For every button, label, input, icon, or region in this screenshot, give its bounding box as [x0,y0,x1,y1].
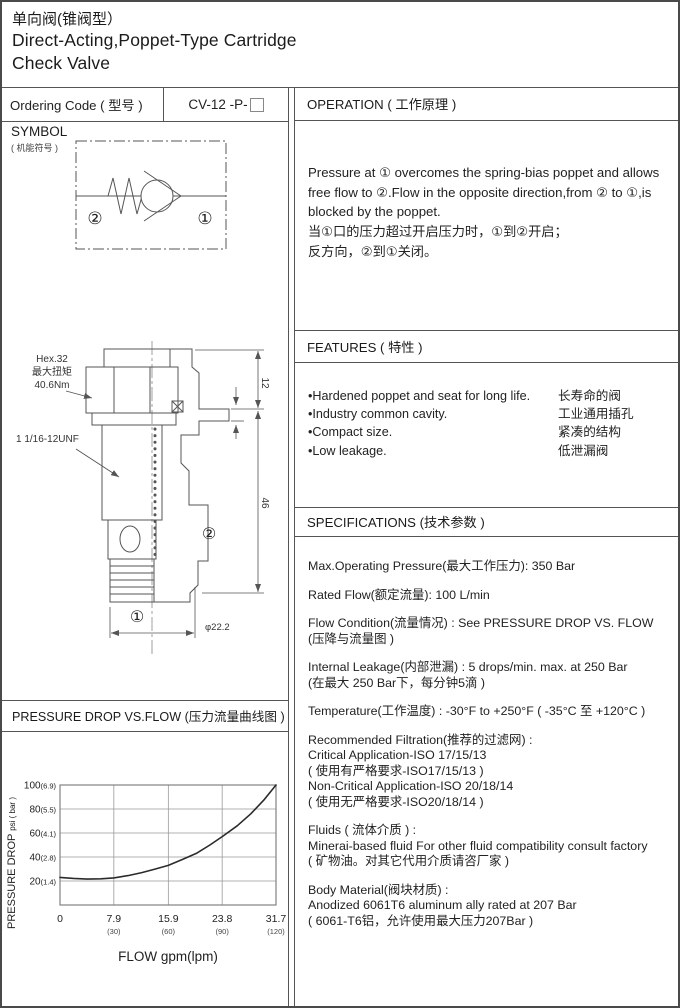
column-divider-outer [288,88,289,1006]
spec-line: (在最大 250 Bar下，每分钟5滴 ) [308,676,668,692]
x-tick-sublabel: (120) [267,927,285,936]
spec-item: Internal Leakage(内部泄漏) : 5 drops/min. ma… [308,660,668,691]
symbol-heading-zh: ( 机能符号 ) [11,141,58,154]
spec-line: Non-Critical Application-ISO 20/18/14 [308,779,668,795]
operation-section: OPERATION ( 工作原理 ) Pressure at ① overcom… [295,88,678,262]
thread-label: 1 1/16-12UNF [16,434,79,445]
drawing-port-2-label: ② [202,526,216,543]
specifications-section: SPECIFICATIONS (技术参数 ) Max.Operating Pre… [295,507,678,942]
x-axis-label: FLOW gpm(lpm) [118,949,218,964]
operation-text-en: Pressure at ① overcomes the spring-bias … [308,163,666,222]
x-tick-label: 23.8 [212,913,233,925]
spec-line: Critical Application-ISO 17/15/13 [308,748,668,764]
feature-text-zh: 低泄漏阀 [558,442,662,460]
spec-line: ( 6061-T6铝，允许使用最大压力207Bar ) [308,914,668,930]
ordering-code-option-box [250,98,264,112]
spec-line: ( 使用无严格要求-ISO20/18/14 ) [308,795,668,811]
feature-row: •Low leakage.低泄漏阀 [308,442,662,460]
symbol-port-2-label: ② [87,209,102,228]
symbol-heading: SYMBOL [11,124,67,139]
y-axis-label: PRESSURE DROP psi ( bar ) [6,797,18,929]
ordering-code-text: CV-12 -P- [188,97,247,112]
hex-callout-arrow [66,391,92,398]
page-title-en-line2: Check Valve [12,52,297,74]
spec-line: Flow Condition(流量情况) : See PRESSURE DROP… [308,616,668,632]
operation-content: Pressure at ① overcomes the spring-bias … [295,121,678,262]
symbol-port-1-label: ① [197,209,212,228]
spec-item: Fluids ( 流体介质 ) :Minerai-based fluid For… [308,823,668,870]
x-tick-sublabel: (60) [162,927,176,936]
spec-line: Internal Leakage(内部泄漏) : 5 drops/min. ma… [308,660,668,676]
y-tick-label: 60(4.1) [29,829,56,840]
feature-text-en: •Low leakage. [308,442,558,460]
valve-body-outline [86,349,229,602]
ordering-code-row: Ordering Code ( 型号 ) CV-12 -P- [2,88,288,122]
title-block: 单向阀(锥阀型） Direct-Acting,Poppet-Type Cartr… [12,10,297,74]
dim-46-label: 46 [259,497,270,509]
thread-callout-arrow [76,449,119,477]
pressure-drop-section-header: PRESSURE DROP VS.FLOW (压力流量曲线图 ) [2,700,288,732]
hex-label-line2: 最大扭矩 [32,365,72,378]
feature-row: •Compact size.紧凑的结构 [308,423,662,441]
y-tick-label: 20(1.4) [29,877,56,888]
x-tick-label: 15.9 [158,913,179,925]
spec-line: Recommended Filtration(推荐的过滤网) : [308,733,668,749]
x-tick-label: 0 [57,913,63,925]
datasheet-page: 单向阀(锥阀型） Direct-Acting,Poppet-Type Cartr… [0,0,680,1008]
x-tick-label: 31.7 [266,913,287,925]
spec-item: Flow Condition(流量情况) : See PRESSURE DROP… [308,616,668,647]
dimension-lines [110,350,264,638]
spec-line: Anodized 6061T6 aluminum ally rated at 2… [308,898,668,914]
spec-line: Temperature(工作温度) : -30°F to +250°F ( -3… [308,704,668,720]
page-title-en-line1: Direct-Acting,Poppet-Type Cartridge [12,29,297,51]
cartridge-cross-section-drawing: 12 46 φ22.2 Hex.32 最大扭矩 40.6Nm 1 1/16-12… [2,335,288,702]
feature-row: •Industry common cavity.工业通用插孔 [308,405,662,423]
dim-diameter-label: φ22.2 [205,622,230,633]
spec-line: Fluids ( 流体介质 ) : [308,823,668,839]
hex-label-line3: 40.6Nm [34,380,69,391]
spec-item: Recommended Filtration(推荐的过滤网) :Critical… [308,733,668,811]
poppet-ball-symbol [141,180,173,212]
spec-line: Rated Flow(额定流量): 100 L/min [308,588,668,604]
x-tick-label: 7.9 [107,913,122,925]
ordering-code-label: Ordering Code ( 型号 ) [2,88,164,121]
hex-label-line1: Hex.32 [36,354,68,365]
spec-line: Max.Operating Pressure(最大工作压力): 350 Bar [308,559,668,575]
feature-text-en: •Compact size. [308,423,558,441]
operation-text-zh1: 当①口的压力超过开启压力时，①到②开启； [308,222,666,242]
y-tick-label: 100(6.9) [24,781,57,792]
spec-item: Rated Flow(额定流量): 100 L/min [308,588,668,604]
operation-text-zh2: 反方向，②到①关闭。 [308,242,666,262]
y-tick-label: 40(2.8) [29,853,56,864]
drawing-port-1-label: ① [130,609,144,626]
spec-item: Body Material(阀块材质) :Anodized 6061T6 alu… [308,883,668,930]
features-list: •Hardened poppet and seat for long life.… [295,363,678,460]
check-valve-symbol-schematic: ② ① [60,133,242,265]
spec-line: Body Material(阀块材质) : [308,883,668,899]
spec-item: Max.Operating Pressure(最大工作压力): 350 Bar [308,559,668,575]
dim-12-label: 12 [259,377,270,389]
feature-text-zh: 工业通用插孔 [558,405,662,423]
features-section: FEATURES ( 特性 ) •Hardened poppet and sea… [295,330,678,460]
specifications-list: Max.Operating Pressure(最大工作压力): 350 BarR… [295,537,678,929]
spec-line: Minerai-based fluid For other fluid comp… [308,839,668,855]
operation-heading: OPERATION ( 工作原理 ) [295,88,678,121]
feature-row: •Hardened poppet and seat for long life.… [308,387,662,405]
pressure-flow-chart: 20(1.4)40(2.8)60(4.1)80(5.5)100(6.9)07.9… [2,733,288,1006]
spec-line: (压降与流量图 ) [308,632,668,648]
feature-text-zh: 长寿命的阀 [558,387,662,405]
y-tick-label: 80(5.5) [29,805,56,816]
spec-line: ( 使用有严格要求-ISO17/15/13 ) [308,764,668,780]
specifications-heading: SPECIFICATIONS (技术参数 ) [295,507,678,537]
features-heading: FEATURES ( 特性 ) [295,330,678,363]
feature-text-zh: 紧凑的结构 [558,423,662,441]
feature-text-en: •Industry common cavity. [308,405,558,423]
feature-text-en: •Hardened poppet and seat for long life. [308,387,558,405]
spec-line: ( 矿物油。对其它代用介质请咨厂家 ) [308,854,668,870]
x-tick-sublabel: (30) [107,927,121,936]
ordering-code-value: CV-12 -P- [164,88,288,121]
page-title-zh: 单向阀(锥阀型） [12,10,297,29]
x-tick-sublabel: (90) [215,927,229,936]
spec-item: Temperature(工作温度) : -30°F to +250°F ( -3… [308,704,668,720]
